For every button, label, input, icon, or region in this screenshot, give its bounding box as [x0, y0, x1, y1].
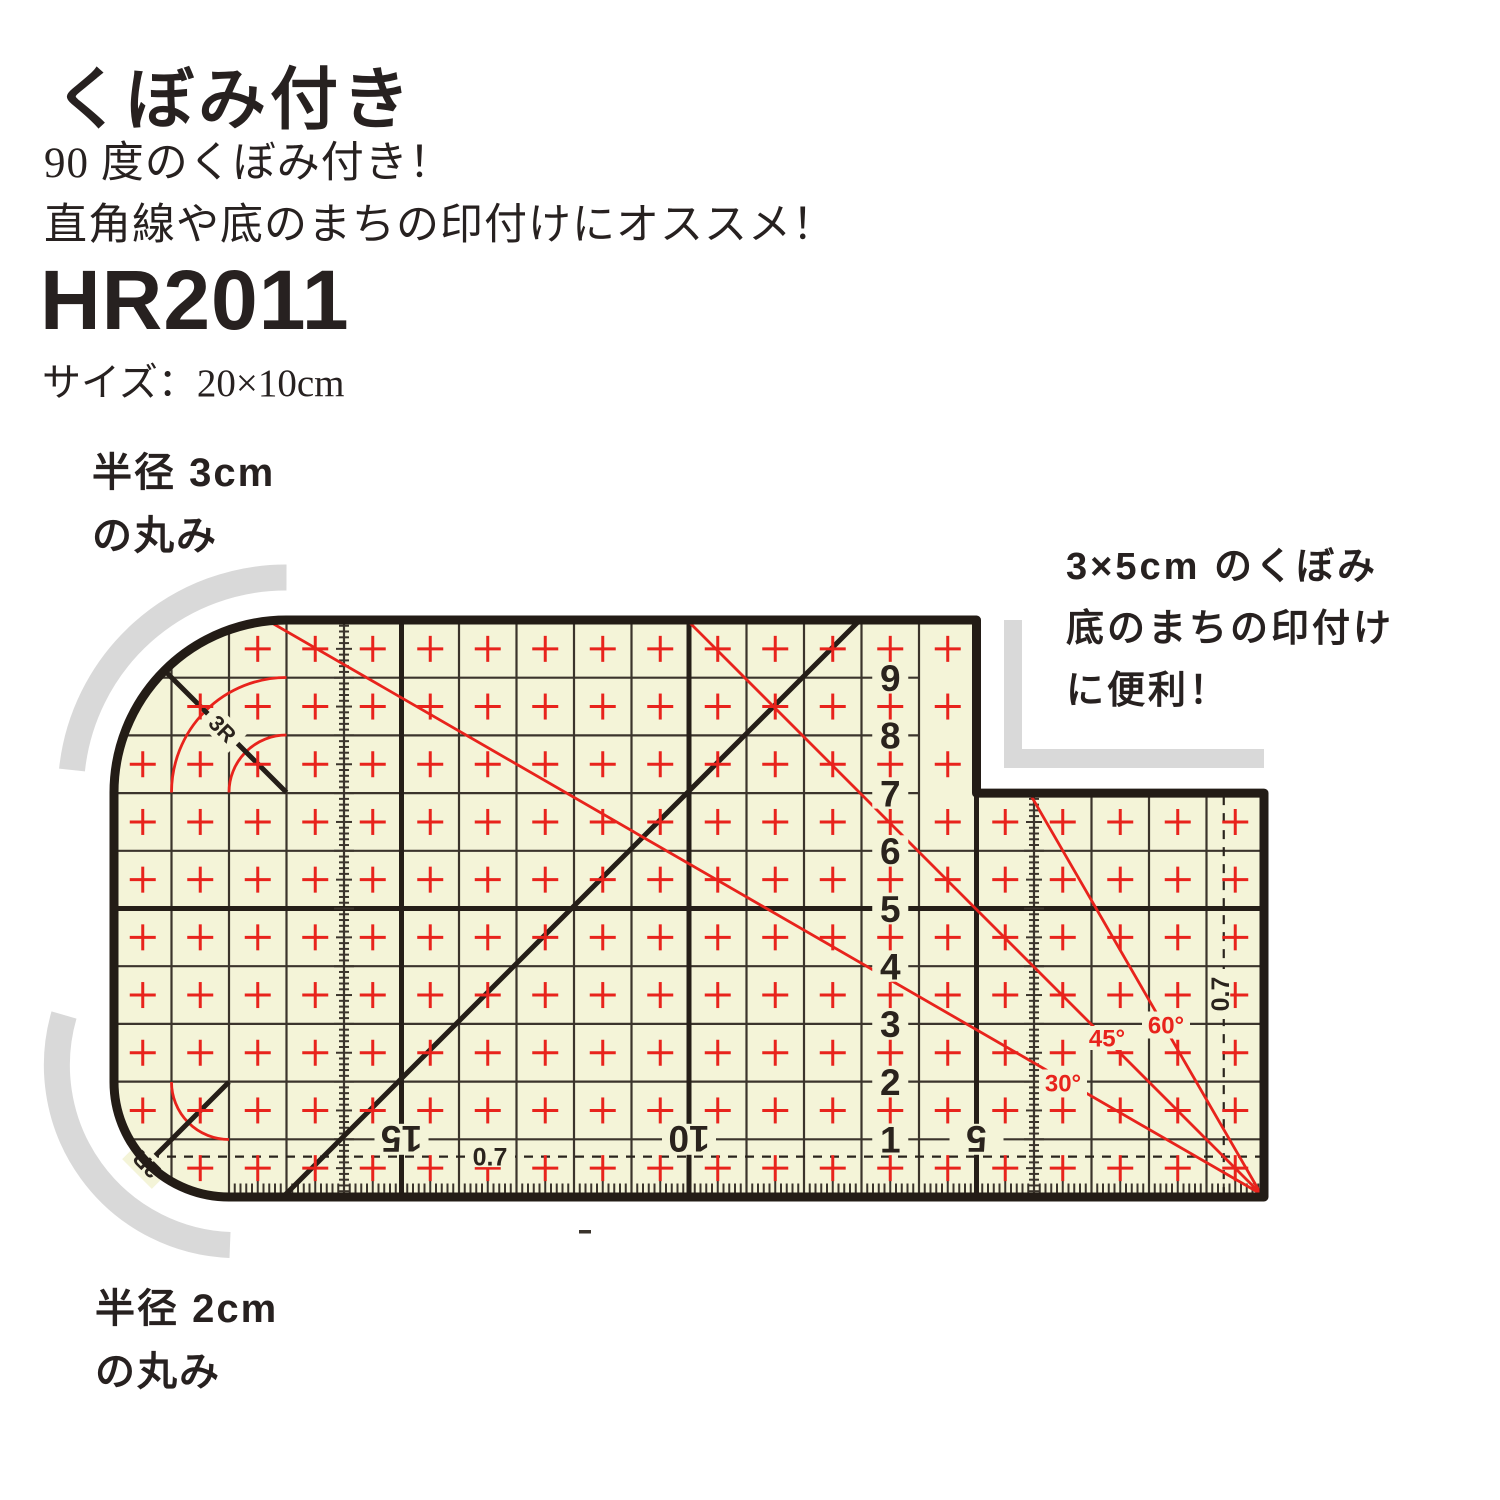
bottom-number-label-group: 5 [950, 1118, 1004, 1159]
bottom-number-label: 10 [668, 1118, 709, 1159]
side-number-label-group: 4 [872, 947, 908, 988]
bottom-number-label-group: 10 [662, 1118, 716, 1159]
side-number-label-group: 3 [872, 1004, 908, 1045]
tick-dash [579, 1230, 591, 1234]
side-number-label: 7 [880, 773, 901, 814]
angle-label-45: 45° [1089, 1026, 1125, 1053]
page: くぼみ付き 90 度のくぼみ付き！ 直角線や底のまちの印付けにオススメ！ HR2… [0, 0, 1500, 1500]
side-number-label-group: 2 [872, 1062, 908, 1103]
side-number-label-group: 9 [872, 658, 908, 699]
ruler-graphics [114, 620, 1264, 1197]
ruler-diagram: 987654321151050.70.730°45°60°3R2R [0, 0, 1500, 1500]
side-number-label: 2 [880, 1062, 901, 1103]
angle-label-30-group: 30° [1039, 1070, 1087, 1098]
side-number-label-group: 6 [872, 831, 908, 872]
notch-guide-horizontal [1004, 749, 1264, 768]
notch-guide-vertical [1004, 620, 1022, 768]
side-number-label-group: 7 [872, 773, 908, 814]
side-number-label: 4 [880, 947, 901, 988]
angle-label-60-group: 60° [1142, 1012, 1190, 1040]
side-number-label: 5 [880, 889, 901, 930]
angle-label-30: 30° [1045, 1071, 1081, 1098]
side-number-label: 1 [880, 1120, 901, 1161]
offset-label-bottom: 0.7 [473, 1144, 508, 1172]
side-number-label: 8 [880, 716, 901, 757]
angle-label-60: 60° [1148, 1013, 1184, 1040]
side-number-label: 6 [880, 831, 901, 872]
offset-label-right: 0.7 [1207, 977, 1235, 1012]
bottom-number-label: 15 [381, 1118, 422, 1159]
angle-label-45-group: 45° [1083, 1026, 1131, 1053]
side-number-label-group: 8 [872, 716, 908, 757]
bottom-number-label: 5 [966, 1118, 987, 1159]
side-number-label: 3 [880, 1004, 901, 1045]
side-number-label-group: 5 [872, 889, 908, 930]
side-number-label-group: 1 [872, 1120, 908, 1161]
side-number-label: 9 [880, 658, 901, 699]
bottom-number-label-group: 15 [375, 1118, 429, 1159]
